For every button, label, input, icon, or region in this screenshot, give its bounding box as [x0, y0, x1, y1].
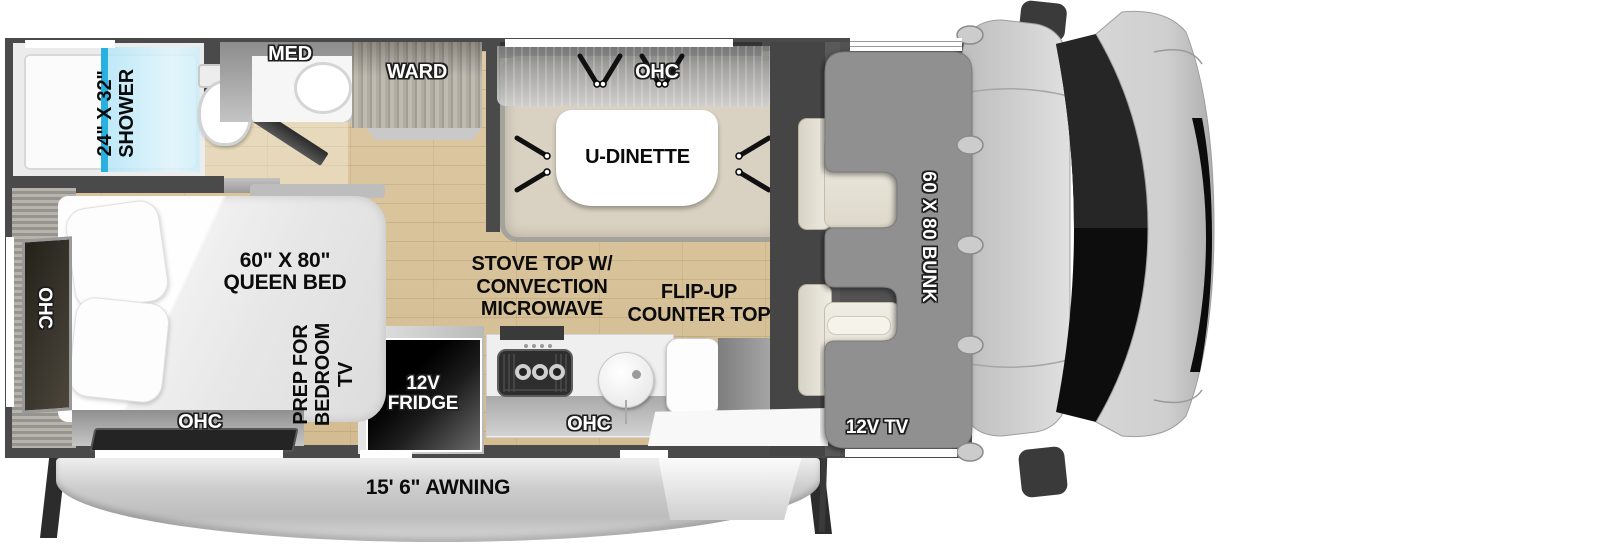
window-strip [850, 38, 962, 51]
stove-annotation: STOVE TOP W/ CONVECTION MICROWAVE [452, 253, 632, 321]
stove-icon [496, 342, 574, 398]
flip-up-counter-annotation: FLIP-UP COUNTER TOP [618, 281, 780, 326]
bedroom-ohc-side-label-box: OHC [22, 266, 66, 350]
window-strip [360, 450, 412, 458]
wardrobe-label: WARD [374, 62, 460, 83]
range-vent [500, 326, 564, 340]
vanity-sink [294, 62, 352, 114]
window-strip [6, 237, 14, 407]
window-strip [505, 39, 733, 47]
window-strip [845, 449, 957, 457]
entry-step-exterior [655, 456, 805, 520]
tv-prep-label: PREP FOR BEDROOM TV [290, 323, 357, 426]
rv-floorplan-diagram: 15' 6" AWNING 24" X 32" SHOWER MED WARD [0, 0, 1600, 554]
counter-side-panel [718, 338, 774, 414]
cab-front-graphic [950, 0, 1220, 554]
dinette-ohc-label: OHC [627, 62, 687, 83]
window-strip [25, 40, 115, 48]
wardrobe-shelf [366, 128, 482, 140]
bunk-label-box: 60 X 80 BUNK [906, 132, 950, 342]
sink-drain-line [625, 400, 627, 424]
wardrobe [352, 42, 482, 128]
med-cabinet-label: MED [255, 44, 325, 65]
bedroom-ohc-rear-label: OHC [168, 412, 232, 433]
faucet-icon [632, 370, 641, 379]
tv-prep-label-box: PREP FOR BEDROOM TV [298, 293, 350, 457]
bedroom-ohc-side-label: OHC [34, 287, 54, 329]
fridge-label: 12V FRIDGE [388, 374, 459, 414]
cab-tv-label: 12V TV [822, 418, 932, 438]
flip-up-counter [666, 338, 720, 414]
pillow [63, 198, 170, 312]
entry-landing [646, 408, 828, 446]
bunk-label: 60 X 80 BUNK [918, 171, 938, 303]
window-strip [620, 450, 668, 458]
queen-bed-label: 60" X 80" QUEEN BED [200, 250, 370, 295]
kitchen-ohc-label: OHC [558, 414, 620, 435]
pillow [67, 295, 171, 404]
shower-dimension-label: 24" X 32" SHOWER [66, 50, 166, 176]
window-strip [95, 450, 283, 458]
dinette-label: U-DINETTE [560, 147, 715, 168]
